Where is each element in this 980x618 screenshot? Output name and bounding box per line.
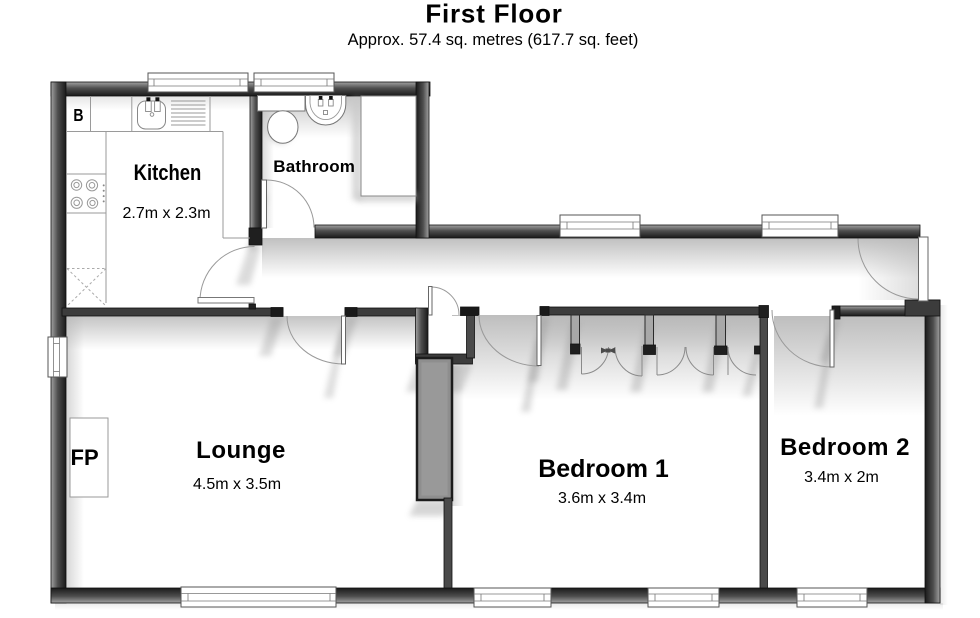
svg-text:Lounge: Lounge — [196, 437, 286, 464]
svg-text:First Floor: First Floor — [425, 0, 562, 29]
svg-text:Approx. 57.4 sq. metres (617.7: Approx. 57.4 sq. metres (617.7 sq. feet) — [348, 31, 639, 49]
svg-text:Bedroom 2: Bedroom 2 — [780, 434, 910, 461]
svg-text:3.6m x 3.4m: 3.6m x 3.4m — [558, 490, 646, 507]
svg-text:B: B — [73, 105, 83, 125]
svg-text:4.5m x 3.5m: 4.5m x 3.5m — [193, 476, 281, 493]
svg-text:Bathroom: Bathroom — [273, 157, 355, 176]
svg-text:2.7m x 2.3m: 2.7m x 2.3m — [122, 205, 210, 222]
svg-text:Bedroom 1: Bedroom 1 — [538, 455, 669, 483]
svg-text:Kitchen: Kitchen — [134, 162, 202, 186]
svg-text:3.4m x 2m: 3.4m x 2m — [804, 469, 879, 486]
svg-text:FP: FP — [71, 445, 99, 470]
